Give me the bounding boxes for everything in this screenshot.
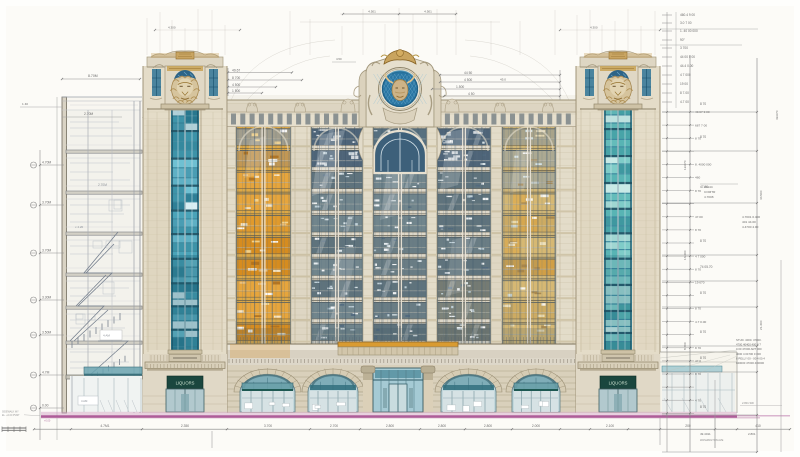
svg-text:WASHINGTON AVE: WASHINGTON AVE [700, 438, 724, 442]
svg-text:4 7 000: 4 7 000 [680, 73, 691, 77]
svg-text:8.700: 8.700 [683, 342, 687, 350]
svg-text:4700 40400 400 4.7: 4700 40400 400 4.7 [736, 343, 761, 347]
svg-text:460: 460 [695, 176, 700, 180]
svg-text:4 500: 4 500 [464, 78, 472, 82]
svg-text:8. 4000 000: 8. 4000 000 [695, 163, 712, 167]
svg-text:2.000: 2.000 [532, 424, 540, 428]
svg-text:460.4 9 00: 460.4 9 00 [680, 13, 695, 17]
svg-text:4.501: 4.501 [368, 10, 376, 14]
svg-text:2.801 SW: 2.801 SW [742, 401, 754, 405]
svg-text:0.00 47000 ART 000: 0.00 47000 ART 000 [736, 347, 762, 351]
svg-text:2.70M: 2.70M [84, 112, 93, 116]
svg-text:4 70: 4 70 [695, 398, 701, 402]
svg-text:4.7 0.00: 4.7 0.00 [695, 320, 706, 324]
svg-text:44.4 0.00: 44.4 0.00 [680, 64, 694, 68]
svg-text:3.0 7 00: 3.0 7 00 [680, 21, 692, 25]
svg-text:040000 47000 400000: 040000 47000 400000 [736, 361, 764, 365]
svg-text:LIQUORS: LIQUORS [176, 381, 195, 386]
svg-text:2.800: 2.800 [438, 424, 446, 428]
svg-text:2.350: 2.350 [181, 424, 189, 428]
svg-text:4 AM: 4 AM [103, 334, 110, 338]
svg-text:8 70: 8 70 [700, 102, 706, 106]
svg-text:4 500: 4 500 [232, 83, 240, 87]
svg-text:4 50: 4 50 [468, 92, 475, 96]
svg-text:90°: 90° [680, 38, 686, 42]
svg-text:49.4011: 49.4011 [700, 432, 711, 436]
svg-text:4.7008: 4.7008 [704, 195, 714, 199]
svg-text:8 70: 8 70 [695, 346, 701, 350]
svg-text:19 00: 19 00 [680, 82, 688, 86]
svg-text:4.7001 0.400: 4.7001 0.400 [742, 215, 760, 219]
svg-text:49.670: 49.670 [775, 110, 779, 120]
svg-text:2.801: 2.801 [748, 432, 756, 436]
svg-text:1.500: 1.500 [456, 85, 464, 89]
svg-text:2.100: 2.100 [606, 424, 614, 428]
svg-text:4000 4 04700 0 000: 4000 4 04700 0 000 [736, 352, 761, 356]
svg-text:8 7.00: 8 7.00 [680, 91, 689, 95]
svg-text:19.670: 19.670 [683, 160, 687, 170]
svg-text:410: 410 [755, 424, 761, 428]
svg-text:687 7 00: 687 7 00 [695, 123, 707, 127]
svg-text:8.70M: 8.70M [88, 74, 98, 78]
svg-text:8 70: 8 70 [695, 307, 701, 311]
svg-text:8 PELLY 00 - 00 4 00.4: 8 PELLY 00 - 00 4 00.4 [736, 356, 765, 360]
svg-text:2.70M: 2.70M [98, 183, 107, 187]
svg-text:1 500: 1 500 [232, 89, 240, 93]
svg-text:4.4700 4.00: 4.4700 4.00 [742, 225, 759, 229]
svg-text:8 70: 8 70 [700, 330, 706, 334]
svg-text:4.300: 4.300 [168, 26, 176, 30]
svg-text:STUD. 4000. 47000.: STUD. 4000. 47000. [736, 338, 762, 342]
svg-text:8 70: 8 70 [700, 135, 706, 139]
svg-text:44.500: 44.500 [759, 190, 763, 200]
svg-text:49.67: 49.67 [232, 68, 240, 72]
svg-text:0.00: 0.00 [42, 404, 49, 408]
svg-text:21.300: 21.300 [759, 320, 763, 330]
svg-text:3.700: 3.700 [264, 424, 272, 428]
svg-text:x 4.20: x 4.20 [75, 225, 84, 229]
svg-text:4.501: 4.501 [424, 10, 432, 14]
svg-text:+0.00: +0.00 [44, 419, 51, 422]
svg-text:8 700: 8 700 [232, 76, 240, 80]
svg-text:44 50: 44 50 [464, 71, 472, 75]
svg-text:8 70: 8 70 [695, 189, 701, 193]
svg-text:13.400: 13.400 [683, 250, 687, 260]
svg-text:47.00: 47.00 [695, 215, 703, 219]
svg-text:LIQUORS: LIQUORS [609, 381, 628, 386]
svg-text:1 40: 1 40 [22, 102, 28, 106]
svg-text:4.50: 4.50 [336, 57, 342, 61]
svg-text:8 70: 8 70 [700, 405, 706, 409]
svg-text:401 44.00: 401 44.00 [742, 220, 756, 224]
svg-text:8 70: 8 70 [700, 239, 706, 243]
svg-text:44 00 0 00: 44 00 0 00 [680, 55, 695, 59]
svg-text:4.7M1: 4.7M1 [100, 424, 109, 428]
svg-text:2.800: 2.800 [484, 424, 492, 428]
svg-text:1. 40 00 000: 1. 40 00 000 [680, 29, 698, 33]
svg-text:45.0: 45.0 [500, 78, 506, 82]
svg-text:3.50M: 3.50M [42, 331, 51, 335]
svg-text:2.800: 2.800 [386, 424, 394, 428]
svg-text:COMTR: COMTR [704, 190, 716, 194]
svg-text:4 AM: 4 AM [81, 399, 88, 403]
svg-text:24144: 24144 [704, 185, 713, 189]
svg-text:3 700: 3 700 [680, 46, 688, 50]
svg-text:4.7M: 4.7M [42, 371, 50, 375]
svg-text:3.70M: 3.70M [42, 201, 51, 205]
svg-text:8 70: 8 70 [695, 228, 701, 232]
svg-text:8 70: 8 70 [700, 356, 706, 360]
svg-text:4.70M: 4.70M [42, 161, 51, 165]
svg-text:74 05.70: 74 05.70 [700, 265, 713, 269]
svg-text:2.700: 2.700 [330, 424, 338, 428]
svg-text:EL. +0.00 PVMT: EL. +0.00 PVMT [2, 414, 20, 417]
svg-text:8 70: 8 70 [700, 291, 706, 295]
svg-text:4.300: 4.300 [590, 26, 598, 30]
svg-text:3.30M: 3.30M [42, 296, 51, 300]
svg-text:3.70M: 3.70M [42, 249, 51, 253]
svg-text:4.7 00: 4.7 00 [680, 100, 689, 104]
svg-text:8 70: 8 70 [695, 372, 701, 376]
